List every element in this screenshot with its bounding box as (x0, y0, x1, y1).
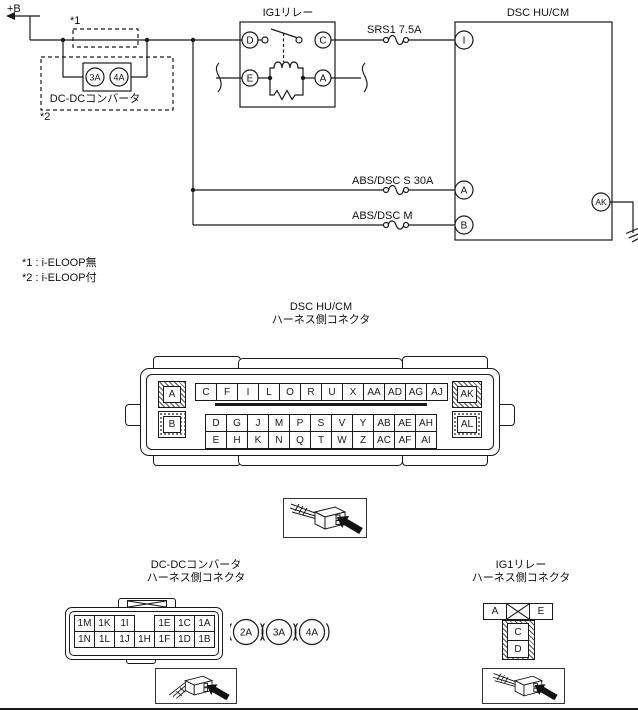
dcdc-connector: 1M 1K 1I 1E 1C 1A 1N 1L 1J 1H 1F 1D 1B (60, 596, 340, 668)
power-label: +B (7, 3, 21, 15)
ig1-connector-photo (482, 668, 565, 704)
pin-cell: 1E (154, 615, 175, 632)
dsc-connector-photo (283, 498, 367, 538)
pin-cell: 1D (174, 631, 195, 648)
dsc-pin-row-top: C F I L O R U X AA AD AG AJ (195, 383, 448, 401)
relay-terminal-a-label: A (320, 74, 327, 85)
relay-coil (270, 62, 303, 78)
ig1-connector: A E C D (460, 596, 580, 666)
pin-cell: Y (352, 414, 374, 432)
pin-cell: E (205, 431, 227, 449)
dsc-pin-row-mid: D G J M P S V Y AB AE AH (205, 414, 437, 432)
pin-cell: N (268, 431, 290, 449)
pin-label: AL (457, 416, 477, 433)
pin-label: B (163, 416, 181, 433)
relay-title: IG1リレー (263, 7, 314, 19)
pin-cell: 1J (114, 631, 135, 648)
connector-plug-icon (158, 670, 234, 702)
fuse-pin-label: 4A (306, 628, 319, 639)
dsc-pin-B: B (158, 411, 186, 438)
pin-cell: V (331, 414, 353, 432)
relay-terminal-c-label: C (319, 36, 326, 47)
pin-cell: 1L (94, 631, 115, 648)
pin-cell: 1I (114, 615, 135, 632)
pin-cell: C (195, 383, 217, 401)
module-terminal-b-label: B (461, 221, 468, 232)
pin-cell: AD (384, 383, 406, 401)
ref1-label: *1 (70, 15, 80, 27)
module-terminal-i-label: I (463, 36, 466, 47)
fuse-pin-label: 2A (240, 628, 253, 639)
note-1: *1 : i-ELOOP無 (22, 257, 97, 270)
pin-cell: AH (415, 414, 437, 432)
dsc-connector-title-2: ハーネス側コネクタ (272, 314, 371, 327)
pin-cell: Q (289, 431, 311, 449)
pin-cell: 1H (134, 631, 155, 648)
fuse-3a-label: 3A (89, 73, 100, 83)
ig1-pin-E: E (529, 603, 553, 620)
pin-cell: K (247, 431, 269, 449)
pin-cell: U (321, 383, 343, 401)
pin-cell: T (310, 431, 332, 449)
ref2-label: *2 (40, 111, 50, 123)
ig1-key-cell (506, 603, 530, 620)
pin-cell: 1M (74, 615, 95, 632)
dcdc-fuse-terminals: 2A 3A 4A (230, 617, 334, 647)
connector-plug-icon (285, 500, 365, 536)
pin-cell: I (237, 383, 259, 401)
ground-icon (626, 228, 638, 243)
abs-dsc-m-label: ABS/DSC M (352, 210, 413, 222)
srs1-fuse-label: SRS1 7.5A (367, 24, 422, 36)
junction-dot (191, 38, 195, 42)
pin-cell: 1A (194, 615, 215, 632)
dsc-module-box (455, 22, 612, 240)
arrow-icon (207, 684, 230, 700)
dsc-pin-A: A (158, 381, 186, 408)
pin-cell: R (300, 383, 322, 401)
dsc-connector: A B AK AL C F I L O R U X AA AD AG AJ D (125, 350, 515, 472)
pin-cell: AJ (426, 383, 448, 401)
pin-cell: O (279, 383, 301, 401)
relay-terminal-e-label: E (247, 74, 254, 85)
dsc-pin-AK: AK (452, 381, 482, 408)
pin-cell: W (331, 431, 353, 449)
dcdc-label: DC-DCコンバータ (50, 92, 140, 105)
pin-cell: M (268, 414, 290, 432)
x-key-icon (507, 604, 529, 619)
dcdc-connector-title-2: ハーネス側コネクタ (147, 572, 246, 585)
ig1-connector-title-1: IG1リレー (496, 559, 547, 572)
dcdc-connector-title-1: DC-DCコンバータ (151, 559, 241, 572)
pin-cell: 1K (94, 615, 115, 632)
pin-cell: 1C (174, 615, 195, 632)
contact-point (296, 37, 302, 43)
pin-cell: S (310, 414, 332, 432)
arrow-icon (534, 684, 557, 700)
ig1-pin-A: A (483, 603, 507, 620)
dsc-pin-row-bot: E H K N Q T W Z AC AF AI (205, 431, 437, 449)
pin-cell: L (258, 383, 280, 401)
dsc-connector-title-1: DSC HU/CM (290, 301, 352, 314)
fuse-pin-label: 3A (273, 628, 286, 639)
pin-cell: Z (352, 431, 374, 449)
connector-plug-icon (486, 670, 562, 702)
pin-cell: 1B (194, 631, 215, 648)
schematic-svg: 3A 4A *1 *2 DC-DCコンバータ IG1リレー D C E A (0, 0, 638, 296)
pin-cell: 1F (154, 631, 175, 648)
pin-cell: P (289, 414, 311, 432)
arrow-icon (337, 516, 363, 534)
note-2: *2 : i-ELOOP付 (22, 272, 97, 285)
pin-cell: AE (394, 414, 416, 432)
dcdc-pin-row-bot: 1N 1L 1J 1H 1F 1D 1B (74, 631, 215, 648)
pin-cell: AF (394, 431, 416, 449)
contact-point (262, 37, 268, 43)
fuse-4a-label: 4A (113, 73, 124, 83)
fuse-symbol (389, 36, 404, 45)
ig1-pin-D: D (507, 640, 529, 658)
pin-cell: J (247, 414, 269, 432)
pin-cell: AI (415, 431, 437, 449)
pin-cell: AC (373, 431, 395, 449)
wiring-diagram-page: 3A 4A *1 *2 DC-DCコンバータ IG1リレー D C E A (0, 0, 638, 710)
pin-cell: F (216, 383, 238, 401)
connector-key-slot (215, 403, 427, 406)
module-terminal-a-label: A (461, 186, 468, 197)
pin-label: AK (457, 386, 477, 403)
pin-cell: G (226, 414, 248, 432)
pin-cell: X (342, 383, 364, 401)
pin-cell-blank (134, 615, 155, 632)
dcdc-pin-row-top: 1M 1K 1I 1E 1C 1A (74, 615, 215, 632)
connector-side-tab (498, 404, 515, 426)
dsc-pin-AL: AL (452, 411, 482, 438)
relay-resistor (270, 78, 303, 100)
pin-cell: D (205, 414, 227, 432)
fusible-link-symbol (388, 221, 404, 229)
pin-cell: H (226, 431, 248, 449)
module-terminal-ak-label: AK (595, 197, 607, 207)
relay-terminal-d-label: D (246, 36, 253, 47)
option-box-1 (73, 29, 138, 47)
ig1-connector-title-2: ハーネス側コネクタ (472, 572, 571, 585)
pin-cell: AA (363, 383, 385, 401)
pin-cell: AB (373, 414, 395, 432)
pin-label: A (163, 386, 181, 403)
dsc-module-title: DSC HU/CM (507, 7, 569, 19)
pin-cell: 1N (74, 631, 95, 648)
wire-break-mark (362, 63, 367, 92)
dcdc-connector-photo (155, 668, 237, 704)
ig1-pin-C: C (507, 623, 529, 641)
pin-cell: AG (405, 383, 427, 401)
